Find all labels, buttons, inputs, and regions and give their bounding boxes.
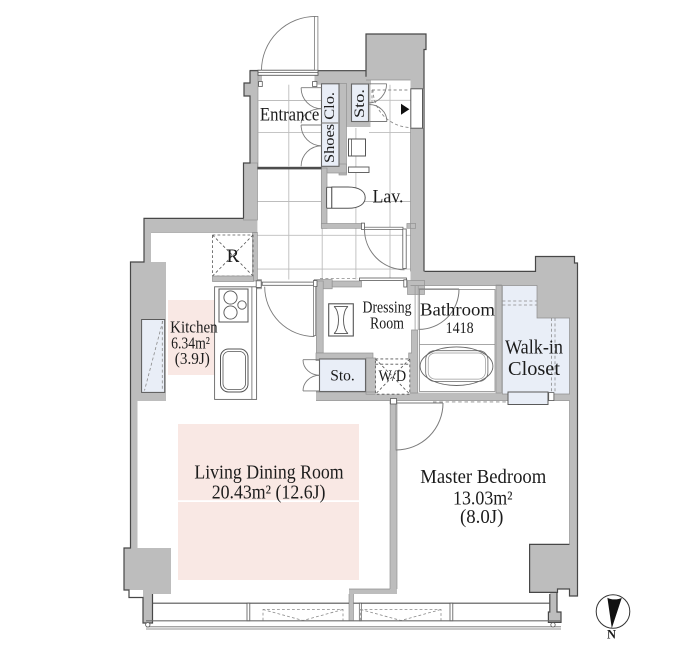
svg-text:Room: Room — [370, 314, 404, 333]
svg-text:R: R — [227, 246, 240, 267]
svg-text:(3.9J): (3.9J) — [175, 349, 210, 368]
svg-text:Bathroom: Bathroom — [420, 300, 495, 320]
svg-text:Shoes Clo.: Shoes Clo. — [322, 92, 338, 163]
svg-text:Lav.: Lav. — [373, 187, 404, 208]
svg-text:Living Dining Room: Living Dining Room — [194, 462, 344, 484]
svg-text:Sto.: Sto. — [352, 89, 368, 118]
svg-text:Walk-in: Walk-in — [505, 337, 563, 359]
svg-text:Entrance: Entrance — [260, 105, 319, 126]
svg-text:(8.0J): (8.0J) — [460, 506, 503, 528]
svg-text:Closet: Closet — [508, 358, 560, 380]
svg-text:N: N — [607, 628, 616, 642]
svg-text:Master Bedroom: Master Bedroom — [420, 466, 546, 488]
svg-text:1418: 1418 — [446, 320, 474, 337]
svg-text:20.43m² (12.6J): 20.43m² (12.6J) — [212, 482, 326, 504]
svg-text:W/D: W/D — [379, 368, 407, 385]
svg-text:Sto.: Sto. — [330, 368, 355, 385]
